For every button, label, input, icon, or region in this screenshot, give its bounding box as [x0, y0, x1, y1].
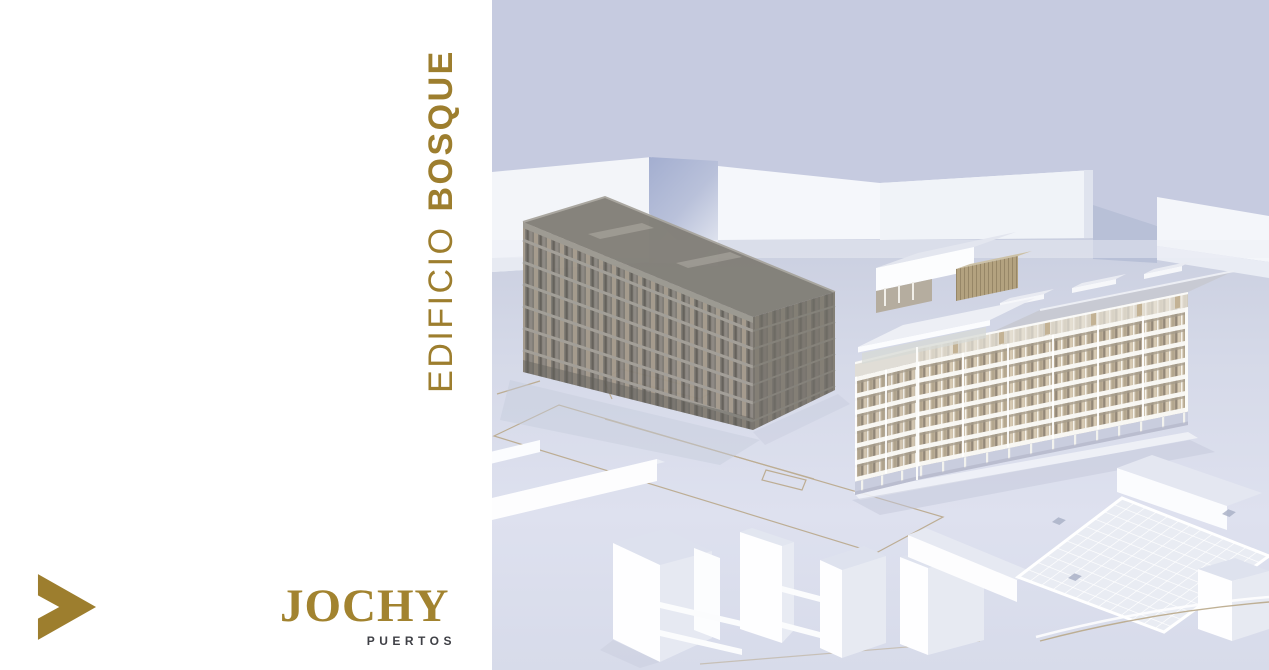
- brand-logo: JOCHY PUERTOS: [280, 583, 458, 648]
- page-title-emphasis: BOSQUE: [422, 49, 461, 211]
- render-svg: [492, 0, 1269, 670]
- end-facade: [855, 347, 917, 495]
- brand-tagline: PUERTOS: [280, 634, 458, 648]
- brand-name: JOCHY: [280, 583, 458, 630]
- chevron-right-icon[interactable]: [37, 572, 97, 642]
- page-title-prefix: EDIFICIO: [422, 226, 461, 393]
- page-title: EDIFICIO BOSQUE: [415, 31, 467, 411]
- slide: EDIFICIO BOSQUE JOCHY PUERTOS: [0, 0, 1269, 670]
- architectural-render: [492, 0, 1269, 670]
